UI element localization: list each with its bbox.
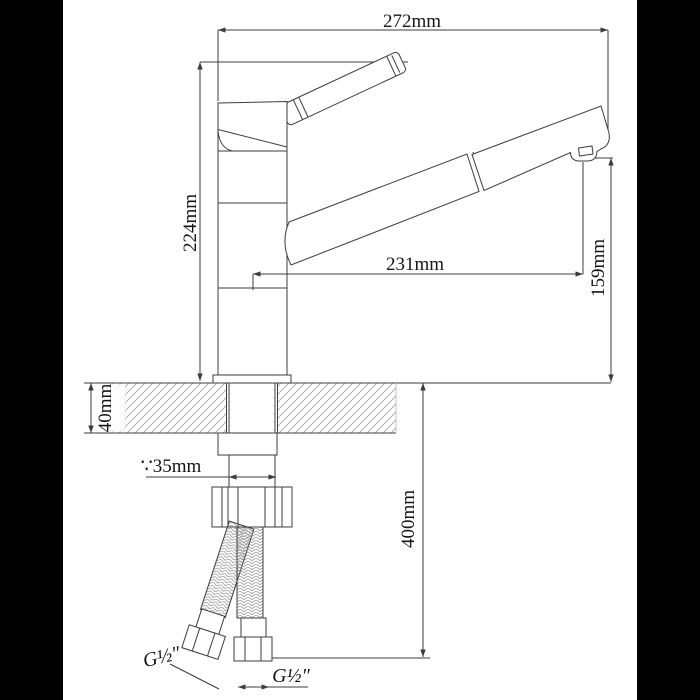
- dim-40-label: 40mm: [95, 384, 116, 433]
- aerator: [579, 146, 594, 156]
- countertop-hatch-right: [277, 384, 396, 433]
- letterbox-left: [0, 0, 63, 700]
- drawing-background: [0, 0, 700, 700]
- thread-label-right: G½″: [272, 665, 310, 687]
- dim-224-label: 224mm: [180, 194, 201, 252]
- letterbox-right: [637, 0, 700, 700]
- countertop-hatch-left: [112, 384, 227, 433]
- hose-ferrule-right: [241, 618, 266, 637]
- dim-272-label: 272mm: [383, 11, 441, 32]
- dim-159-label: 159mm: [588, 239, 609, 297]
- faucet-dimension-drawing: 272mm 224mm 231mm 159mm 40mm ∵35mm 400mm…: [0, 0, 700, 700]
- mounting-nut: [212, 487, 292, 527]
- dim-35-label: ∵35mm: [141, 456, 202, 477]
- technical-drawing-page: 272mm 224mm 231mm 159mm 40mm ∵35mm 400mm…: [0, 0, 700, 700]
- hose-hex-nut-right: [234, 637, 272, 661]
- base-flange: [213, 375, 291, 383]
- dim-400-label: 400mm: [398, 490, 419, 548]
- hose-braid-right: [237, 527, 263, 618]
- dim-231-label: 231mm: [386, 254, 444, 275]
- mounting-washer: [218, 433, 277, 455]
